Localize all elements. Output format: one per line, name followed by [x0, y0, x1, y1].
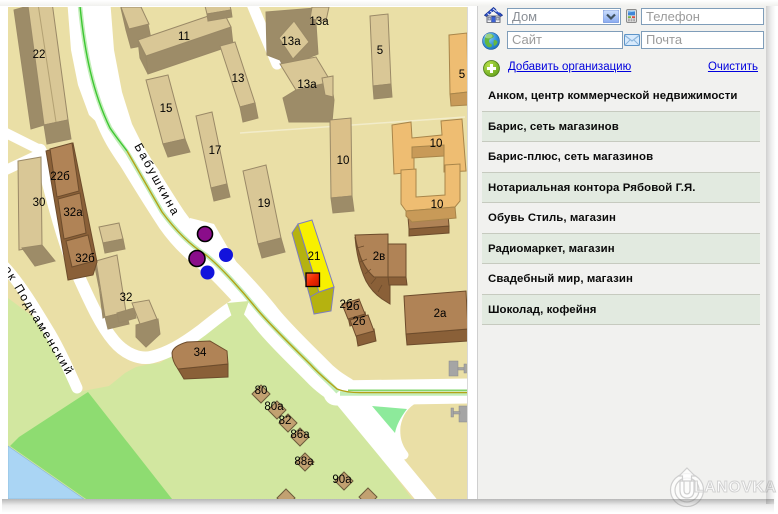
svg-text:15: 15: [160, 103, 173, 115]
svg-text:10: 10: [430, 138, 443, 150]
svg-text:2а: 2а: [434, 308, 447, 320]
svg-text:22б: 22б: [50, 171, 70, 183]
svg-text:32: 32: [120, 292, 133, 304]
svg-text:10: 10: [337, 155, 350, 167]
svg-text:22: 22: [33, 49, 46, 61]
svg-text:32а: 32а: [63, 207, 83, 219]
svg-text:13a: 13a: [309, 16, 329, 28]
svg-text:5: 5: [459, 69, 465, 81]
svg-text:2б: 2б: [347, 301, 360, 313]
svg-text:21: 21: [308, 251, 321, 263]
svg-text:17: 17: [209, 145, 222, 157]
svg-text:32б: 32б: [75, 253, 95, 265]
svg-text:5: 5: [377, 45, 383, 57]
svg-text:13: 13: [232, 73, 245, 85]
svg-text:19: 19: [258, 198, 271, 210]
svg-text:90а: 90а: [332, 474, 352, 486]
svg-text:80а: 80а: [264, 401, 284, 413]
svg-text:11: 11: [178, 31, 190, 43]
svg-text:88а: 88а: [294, 456, 314, 468]
svg-text:10: 10: [431, 199, 444, 211]
svg-text:13a: 13a: [281, 36, 301, 48]
svg-text:34: 34: [194, 347, 207, 359]
svg-text:2б: 2б: [353, 316, 366, 328]
svg-text:86а: 86а: [290, 429, 310, 441]
svg-text:30: 30: [33, 197, 46, 209]
svg-text:13a: 13a: [297, 79, 317, 91]
svg-text:2в: 2в: [373, 251, 386, 263]
svg-text:80: 80: [255, 385, 268, 397]
svg-text:82: 82: [279, 415, 292, 427]
